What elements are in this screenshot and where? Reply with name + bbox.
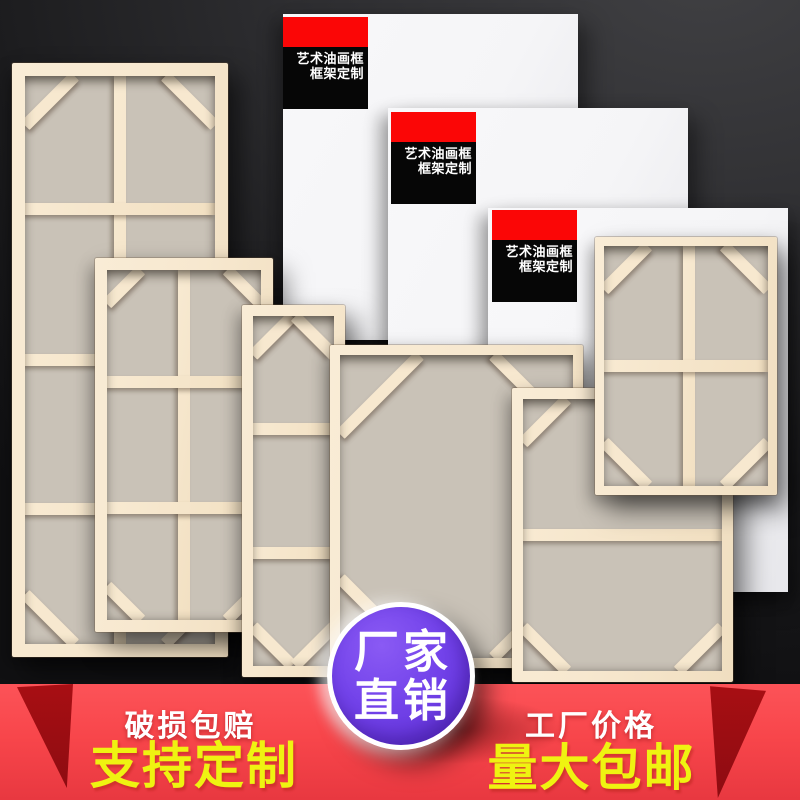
badge-line-1: 厂家 (350, 627, 452, 676)
factory-direct-badge: 厂家 直销 (327, 602, 475, 750)
frame-interior (107, 270, 261, 620)
frame-interior (604, 246, 768, 486)
horizontal-cross-bar (253, 423, 334, 435)
horizontal-cross-bar (253, 547, 334, 559)
corner-brace (253, 623, 296, 666)
promo-text-bulk-free-shipping: 量大包邮 (443, 742, 740, 794)
horizontal-cross-bar (25, 203, 215, 215)
horizontal-cross-bar (107, 502, 261, 514)
corner-brace (291, 316, 334, 359)
stretcher-frame (595, 237, 777, 495)
horizontal-cross-bar (107, 376, 261, 388)
vertical-cross-bar (178, 270, 190, 620)
label-line-2: 框架定制 (283, 66, 364, 81)
frame-interior (253, 316, 334, 666)
promo-text-factory-price: 工厂价格 (455, 701, 727, 745)
label-red-stripe (283, 17, 368, 47)
corner-brace (161, 76, 215, 130)
corner-brace (720, 438, 768, 486)
label-red-stripe (391, 112, 476, 142)
corner-brace (107, 582, 145, 620)
corner-brace (523, 399, 571, 447)
product-label: 艺术油画框框架定制 (492, 210, 577, 302)
product-label: 艺术油画框框架定制 (283, 17, 368, 109)
corner-brace (253, 316, 296, 359)
horizontal-cross-bar (604, 360, 768, 372)
label-line-1: 艺术油画框 (283, 51, 364, 66)
corner-brace (604, 438, 652, 486)
label-line-2: 框架定制 (492, 259, 573, 274)
label-text-area: 艺术油画框框架定制 (391, 142, 476, 204)
corner-brace (107, 270, 145, 308)
promo-banner: 破损包赔 支持定制 工厂价格 量大包邮 厂家 直销 艺术油画框框架定制艺术油画框… (0, 0, 800, 800)
interior-shading (253, 316, 334, 666)
badge-line-2: 直销 (350, 676, 452, 725)
horizontal-cross-bar (523, 529, 722, 541)
corner-brace (523, 623, 571, 671)
label-line-2: 框架定制 (391, 161, 472, 176)
corner-brace (25, 76, 79, 130)
corner-brace (674, 623, 722, 671)
product-label: 艺术油画框框架定制 (391, 112, 476, 204)
label-line-1: 艺术油画框 (391, 146, 472, 161)
corner-brace (291, 623, 334, 666)
corner-brace (720, 246, 768, 294)
label-line-1: 艺术油画框 (492, 244, 573, 259)
promo-text-customization: 支持定制 (48, 740, 340, 792)
corner-brace (223, 270, 261, 308)
corner-brace (340, 355, 424, 439)
label-text-area: 艺术油画框框架定制 (283, 47, 368, 109)
label-text-area: 艺术油画框框架定制 (492, 240, 577, 302)
corner-brace (25, 590, 79, 644)
corner-brace (604, 246, 652, 294)
label-red-stripe (492, 210, 577, 240)
